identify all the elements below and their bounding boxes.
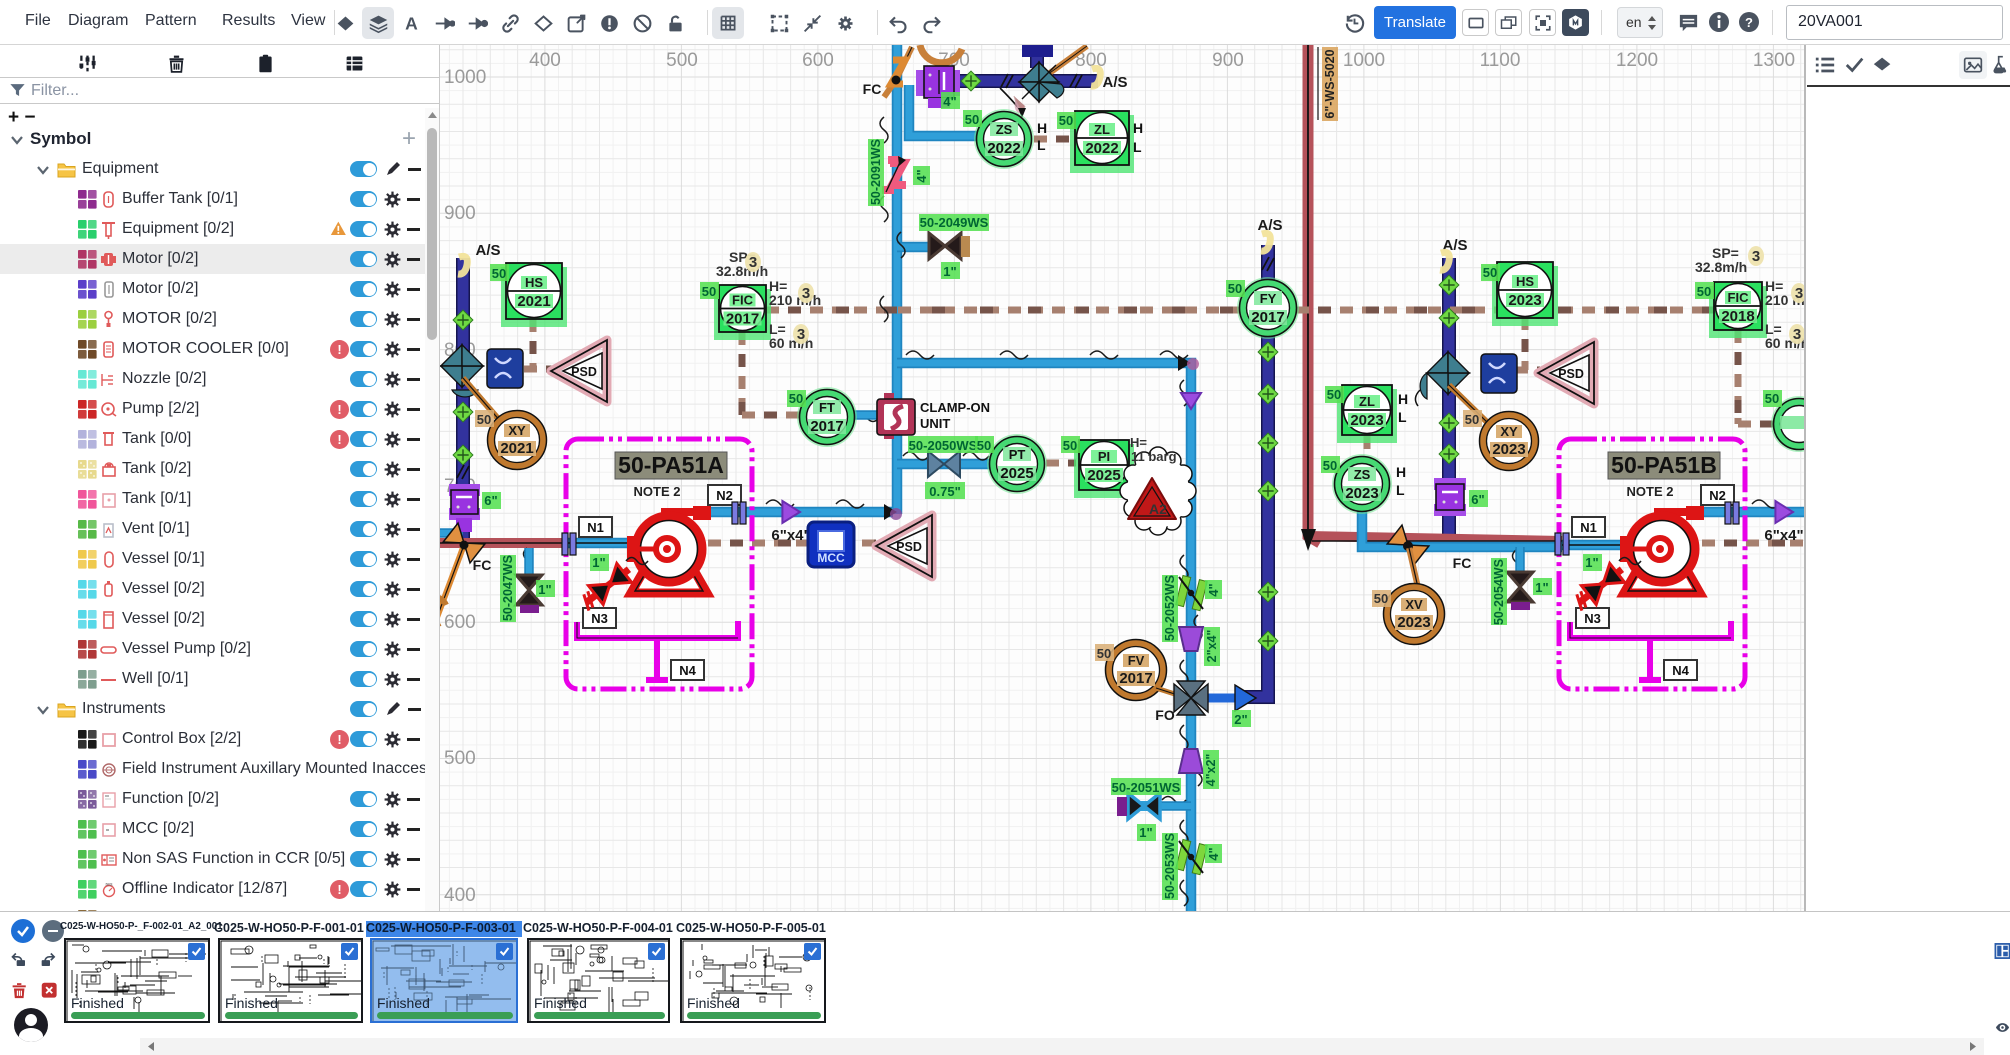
svg-text:FIC: FIC [1728, 290, 1750, 305]
svg-text:4": 4" [1206, 847, 1221, 860]
svg-text:50-2050WS: 50-2050WS [909, 438, 978, 453]
svg-text:50: 50 [1323, 458, 1337, 473]
svg-text:?: ? [1745, 15, 1753, 30]
svg-text:50-2047WS: 50-2047WS [501, 555, 515, 621]
svg-text:1000: 1000 [444, 67, 486, 88]
svg-text:N4: N4 [679, 663, 696, 678]
svg-text:A2: A2 [1149, 501, 1167, 517]
svg-text:1100: 1100 [1480, 50, 1521, 71]
svg-text:2022: 2022 [987, 140, 1020, 157]
svg-text:2023: 2023 [1397, 614, 1430, 631]
svg-text:2017: 2017 [726, 311, 759, 328]
svg-text:UNIT: UNIT [920, 416, 950, 431]
svg-text:3: 3 [1795, 285, 1803, 302]
svg-text:1000: 1000 [1343, 50, 1385, 71]
svg-text:FIC: FIC [732, 293, 754, 308]
svg-text:2021: 2021 [500, 440, 533, 457]
svg-text:50-PA51A: 50-PA51A [618, 452, 724, 478]
svg-text:2017: 2017 [1119, 670, 1152, 687]
svg-text:N2: N2 [1709, 488, 1726, 503]
svg-text:2023: 2023 [1350, 412, 1383, 429]
svg-text:PSD: PSD [1558, 367, 1584, 381]
svg-text:600: 600 [802, 50, 834, 71]
svg-text:3: 3 [1752, 248, 1760, 265]
svg-text:1": 1" [1535, 580, 1548, 595]
svg-text:L: L [1396, 482, 1405, 498]
svg-text:2": 2" [1234, 712, 1247, 727]
svg-text:ZS: ZS [1354, 467, 1371, 482]
svg-text:11 barg: 11 barg [1131, 449, 1177, 464]
svg-text:400: 400 [444, 885, 476, 906]
svg-text:3: 3 [749, 254, 757, 271]
svg-text:50: 50 [492, 266, 506, 281]
svg-text:50: 50 [1228, 281, 1242, 296]
svg-text:FT: FT [819, 400, 835, 415]
svg-text:2"x4": 2"x4" [1205, 630, 1219, 663]
svg-text:1": 1" [592, 555, 605, 570]
svg-text:NOTE 2: NOTE 2 [634, 484, 681, 499]
svg-text:FY: FY [1260, 291, 1277, 306]
svg-text:res: res [106, 882, 113, 888]
svg-text:H: H [1037, 120, 1047, 136]
svg-text:50: 50 [1697, 284, 1711, 299]
svg-text:XY: XY [1500, 424, 1518, 439]
svg-text:ZL: ZL [1094, 122, 1110, 137]
svg-text:50-2051WS: 50-2051WS [1112, 780, 1181, 795]
svg-text:3: 3 [1793, 326, 1801, 343]
svg-text:PSD: PSD [571, 365, 597, 379]
svg-text:FV: FV [1128, 653, 1145, 668]
svg-text:32.8m/h: 32.8m/h [1695, 259, 1747, 275]
svg-text:L: L [1133, 139, 1142, 155]
svg-text:2017: 2017 [810, 418, 843, 435]
svg-text:H=: H= [1130, 435, 1147, 450]
svg-text:4"x2": 4"x2" [1204, 754, 1218, 787]
svg-text:50-2052WS: 50-2052WS [1163, 575, 1177, 641]
svg-text:1": 1" [538, 582, 551, 597]
svg-text:HS: HS [1516, 274, 1534, 289]
svg-text:1300: 1300 [1753, 50, 1795, 71]
svg-text:XV: XV [1405, 597, 1423, 612]
svg-text:2017: 2017 [1251, 309, 1284, 326]
svg-text:A/S: A/S [1102, 74, 1127, 91]
svg-text:N3: N3 [591, 611, 608, 626]
svg-text:6": 6" [1471, 492, 1484, 507]
svg-text:A/S: A/S [475, 242, 500, 259]
svg-text:2022: 2022 [1085, 140, 1118, 157]
svg-text:PSD: PSD [896, 540, 922, 554]
svg-text:XY: XY [508, 423, 526, 438]
svg-text:FO: FO [1155, 707, 1175, 723]
svg-text:50: 50 [1465, 412, 1479, 427]
svg-text:2025: 2025 [1087, 467, 1120, 484]
svg-text:1200: 1200 [1616, 50, 1658, 71]
svg-text:400: 400 [529, 50, 561, 71]
svg-text:A: A [405, 13, 418, 33]
svg-text:50: 50 [977, 438, 991, 453]
svg-text:50: 50 [702, 284, 716, 299]
svg-text:500: 500 [666, 50, 698, 71]
svg-text:2025: 2025 [1000, 465, 1033, 482]
svg-text:4": 4" [914, 169, 929, 182]
svg-text:H: H [1396, 464, 1406, 480]
svg-text:900: 900 [444, 203, 476, 224]
svg-text:2023: 2023 [1508, 292, 1541, 309]
svg-text:50: 50 [477, 412, 491, 427]
svg-text:50: 50 [1765, 391, 1779, 406]
svg-text:ZL: ZL [1359, 394, 1375, 409]
svg-text:L: L [1037, 137, 1046, 153]
svg-text:FC: FC [473, 557, 492, 573]
svg-text:50: 50 [1097, 646, 1111, 661]
svg-text:1": 1" [1585, 555, 1598, 570]
svg-text:4": 4" [943, 94, 956, 109]
svg-text:2021: 2021 [517, 293, 550, 310]
svg-text:2018: 2018 [1721, 308, 1754, 325]
svg-text:6": 6" [484, 493, 497, 508]
svg-text:600: 600 [444, 612, 476, 633]
svg-text:H: H [1398, 391, 1408, 407]
svg-text:3: 3 [802, 285, 810, 302]
svg-text:N3: N3 [1584, 611, 1601, 626]
svg-text:N1: N1 [587, 520, 604, 535]
svg-text:50: 50 [1059, 113, 1073, 128]
svg-text:L: L [1398, 409, 1407, 425]
svg-text:HS: HS [525, 275, 543, 290]
svg-text:50: 50 [965, 112, 979, 127]
svg-text:4": 4" [1206, 583, 1221, 596]
svg-text:MCC: MCC [817, 551, 845, 565]
svg-text:NOTE 2: NOTE 2 [1627, 484, 1674, 499]
svg-text:0.75": 0.75" [929, 484, 960, 499]
svg-text:2023: 2023 [1345, 485, 1378, 502]
svg-text:50: 50 [789, 391, 803, 406]
svg-text:H: H [1133, 120, 1143, 136]
svg-text:6"x4": 6"x4" [771, 527, 810, 544]
svg-text:50-2053WS: 50-2053WS [1163, 833, 1177, 899]
svg-text:CLAMP-ON: CLAMP-ON [920, 400, 990, 415]
svg-text:50: 50 [1063, 438, 1077, 453]
svg-text:6"x4": 6"x4" [1764, 527, 1803, 544]
svg-text:FC: FC [1453, 555, 1472, 571]
svg-text:FC: FC [863, 81, 882, 97]
svg-text:3: 3 [797, 326, 805, 343]
svg-text:2023: 2023 [1492, 441, 1525, 458]
svg-text:50-2091WS: 50-2091WS [869, 139, 883, 205]
svg-text:500: 500 [444, 748, 476, 769]
svg-text:6"-WS-5020: 6"-WS-5020 [1323, 49, 1337, 118]
svg-text:50: 50 [1327, 387, 1341, 402]
svg-text:900: 900 [1212, 50, 1244, 71]
svg-text:PI: PI [1098, 449, 1110, 464]
svg-text:50: 50 [1374, 591, 1388, 606]
svg-text:50: 50 [1483, 265, 1497, 280]
svg-text:50-2049WS: 50-2049WS [920, 215, 989, 230]
svg-text:1": 1" [1139, 825, 1152, 840]
svg-text:50-2054WS: 50-2054WS [1492, 559, 1506, 625]
svg-text:PT: PT [1009, 447, 1026, 462]
svg-text:N1: N1 [1580, 520, 1597, 535]
svg-text:1": 1" [943, 264, 956, 279]
svg-text:ZS: ZS [996, 122, 1013, 137]
svg-text:50-PA51B: 50-PA51B [1611, 452, 1717, 478]
svg-text:N2: N2 [716, 488, 733, 503]
svg-text:N4: N4 [1672, 663, 1689, 678]
